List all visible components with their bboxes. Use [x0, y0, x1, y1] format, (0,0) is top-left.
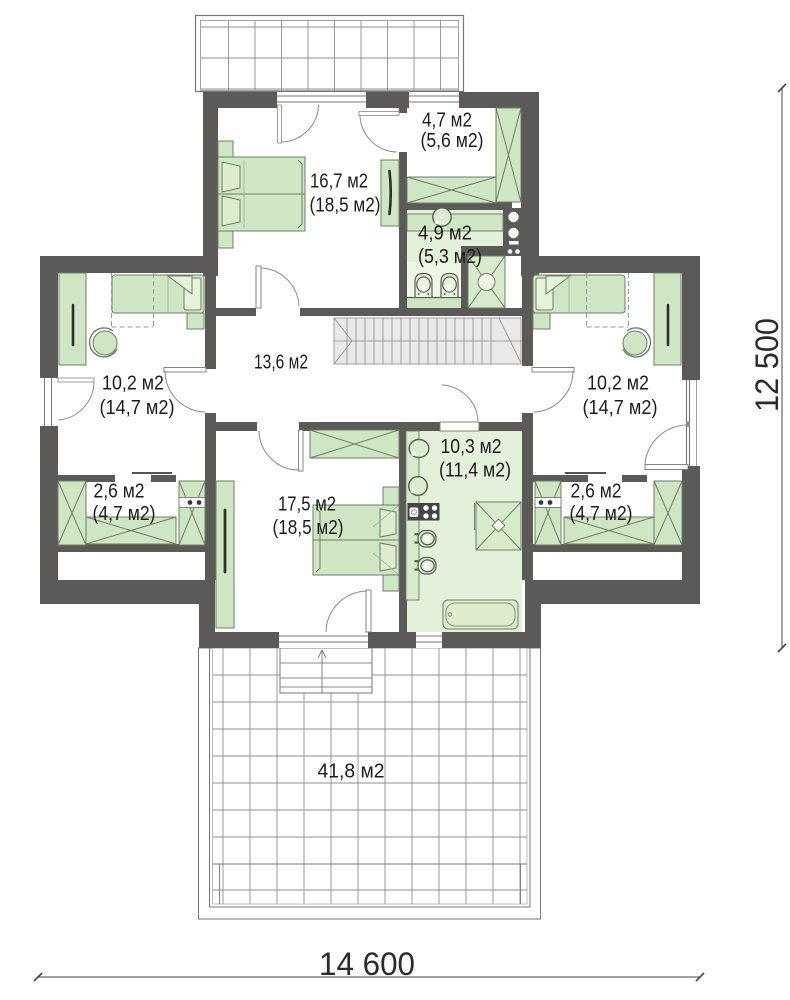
svg-text:(18,5 м2): (18,5 м2) — [310, 195, 381, 217]
svg-text:12 500: 12 500 — [749, 318, 785, 412]
svg-text:4,7 м2: 4,7 м2 — [422, 110, 472, 132]
svg-text:10,3 м2: 10,3 м2 — [441, 436, 502, 458]
svg-text:16,7 м2: 16,7 м2 — [310, 171, 368, 193]
svg-text:13,6 м2: 13,6 м2 — [254, 352, 308, 374]
svg-text:(18,5 м2): (18,5 м2) — [273, 517, 344, 539]
svg-text:4,9 м2: 4,9 м2 — [418, 223, 472, 245]
svg-text:2,6 м2: 2,6 м2 — [94, 481, 145, 503]
svg-text:(11,4 м2): (11,4 м2) — [439, 460, 511, 482]
svg-text:(5,6 м2): (5,6 м2) — [421, 130, 484, 152]
svg-text:(4,7 м2): (4,7 м2) — [93, 503, 156, 525]
svg-text:14 600: 14 600 — [319, 946, 415, 982]
svg-text:(5,3 м2): (5,3 м2) — [418, 246, 482, 268]
svg-text:10,2 м2: 10,2 м2 — [102, 373, 164, 395]
svg-text:(14,7 м2): (14,7 м2) — [583, 397, 658, 419]
svg-text:(14,7 м2): (14,7 м2) — [100, 397, 175, 419]
svg-text:2,6 м2: 2,6 м2 — [571, 481, 622, 503]
svg-text:17,5 м2: 17,5 м2 — [278, 494, 336, 516]
svg-text:10,2 м2: 10,2 м2 — [587, 373, 649, 395]
svg-text:(4,7 м2): (4,7 м2) — [570, 503, 633, 525]
svg-text:41,8 м2: 41,8 м2 — [318, 761, 385, 783]
